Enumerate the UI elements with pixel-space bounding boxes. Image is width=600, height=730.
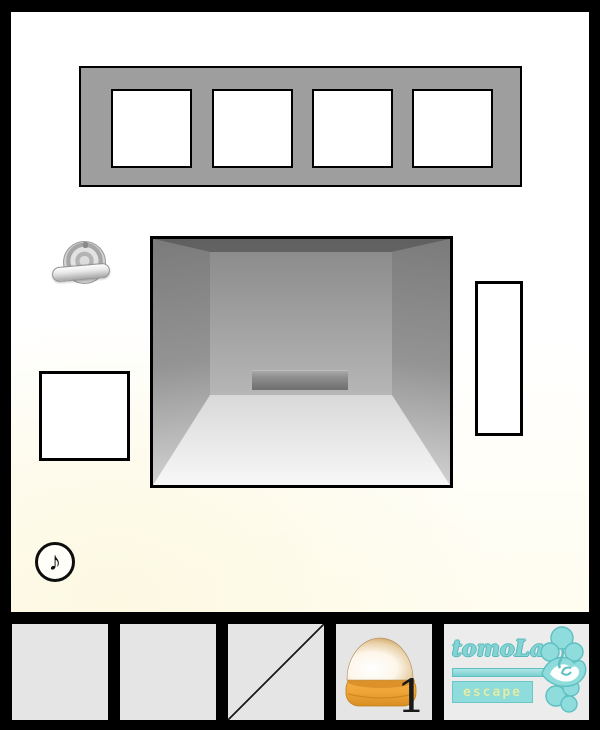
- crossed-out-line: [228, 624, 324, 720]
- inventory-slot-2[interactable]: [120, 624, 216, 720]
- left-wall-square[interactable]: [39, 371, 130, 461]
- right-wall-rect[interactable]: [475, 281, 523, 436]
- brand-logo-slot[interactable]: tomoLa escape: [444, 624, 589, 720]
- panel-frame-4[interactable]: [412, 89, 493, 168]
- inventory-slot-3[interactable]: [228, 624, 324, 720]
- knob-tick-mark: [83, 242, 88, 248]
- knob-handle: [51, 263, 110, 283]
- panel-frame-1[interactable]: [111, 89, 192, 168]
- music-note-icon: ♪: [49, 548, 62, 574]
- game-window: ♪: [0, 0, 600, 730]
- key-head-icon: [538, 626, 589, 718]
- key-shaft: [452, 668, 551, 677]
- panel-frame-2[interactable]: [212, 89, 293, 168]
- brand-subtitle: escape: [463, 685, 522, 700]
- inventory-slot-4[interactable]: 1: [336, 624, 432, 720]
- brand-plate: escape: [452, 681, 533, 703]
- valve-knob[interactable]: [52, 241, 109, 288]
- alcove-ledge[interactable]: [252, 370, 348, 390]
- four-frame-panel[interactable]: [79, 66, 522, 187]
- brand-title: tomoLa: [450, 636, 546, 662]
- inventory-slot-1[interactable]: [12, 624, 108, 720]
- room-scene: ♪: [11, 12, 589, 612]
- item-count-badge: 1: [397, 673, 426, 719]
- wall-alcove[interactable]: [150, 236, 453, 488]
- sound-toggle-button[interactable]: ♪: [35, 542, 75, 582]
- panel-frame-3[interactable]: [312, 89, 393, 168]
